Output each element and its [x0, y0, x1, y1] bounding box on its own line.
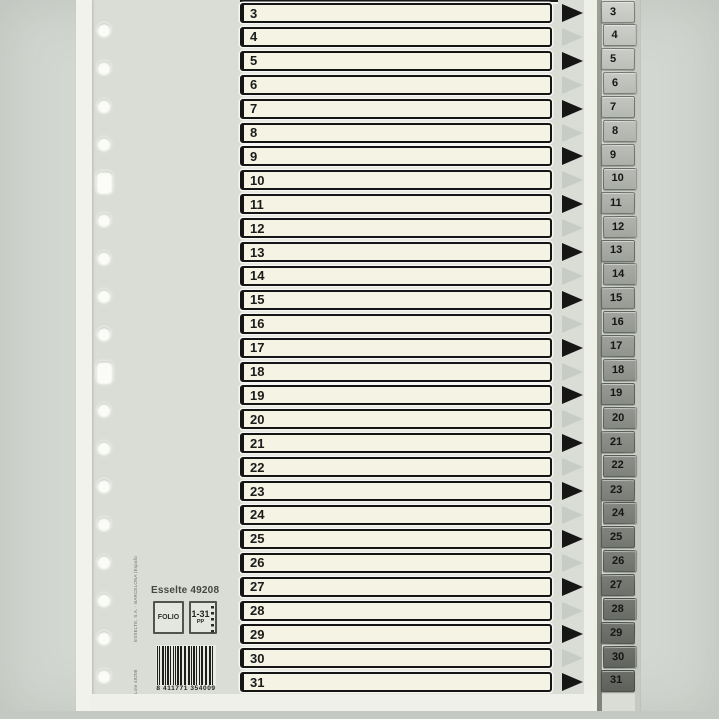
tab-number: 10	[604, 173, 624, 184]
tab-number: 21	[602, 436, 622, 447]
barcode-bar	[165, 646, 166, 685]
partial-row-above	[240, 0, 558, 2]
index-row-box: 31	[240, 672, 552, 692]
arrow-right-icon	[562, 28, 583, 46]
divider-product-photo: 3456789101112131415161718192021222324252…	[0, 0, 719, 719]
arrow-right-icon	[562, 147, 583, 165]
tab-number: 19	[602, 388, 622, 399]
arrow-right-icon	[562, 506, 583, 524]
barcode-bar	[209, 646, 211, 685]
tab-31: 31	[601, 670, 635, 692]
barcode-bar	[175, 646, 176, 685]
barcode-bar	[177, 646, 179, 685]
barcode-bar	[180, 646, 181, 685]
tab-11: 11	[601, 191, 635, 213]
tab-number: 12	[603, 221, 623, 232]
index-row-box: 26	[240, 553, 552, 573]
tab-number: 8	[603, 125, 617, 136]
index-row-box: 22	[240, 457, 552, 477]
index-row-box: 23	[240, 481, 552, 501]
barcode-bar	[188, 646, 189, 685]
tab-23: 23	[601, 478, 635, 500]
index-row-number: 17	[244, 341, 264, 354]
index-row-box: 4	[240, 27, 552, 47]
barcode-bar	[173, 646, 174, 685]
index-row-number: 3	[244, 7, 257, 20]
arrow-right-icon	[562, 578, 583, 596]
tab-24: 24	[602, 502, 636, 524]
micro-print-lot: Lote 49208	[133, 648, 138, 694]
barcode-bar	[185, 646, 186, 685]
tab-8: 8	[602, 120, 636, 142]
index-row-box: 11	[240, 194, 552, 214]
index-row-box: 19	[240, 385, 552, 405]
tab-19: 19	[601, 383, 635, 405]
tab-27: 27	[601, 574, 635, 596]
index-row-number: 20	[244, 413, 264, 426]
tab-15: 15	[601, 287, 635, 309]
tab-number: 16	[604, 317, 624, 328]
index-row-number: 10	[244, 174, 264, 187]
index-row-box: 13	[240, 242, 552, 262]
barcode	[156, 645, 216, 686]
index-row-number: 16	[244, 317, 264, 330]
index-row-number: 30	[244, 652, 264, 665]
barcode-bar	[193, 646, 195, 685]
index-row-box: 14	[240, 266, 552, 286]
tab-number: 27	[602, 580, 622, 591]
barcode-bar	[191, 646, 192, 685]
tab-29: 29	[601, 622, 635, 644]
tab-6: 6	[602, 72, 636, 94]
tab-number: 14	[603, 269, 623, 280]
tab-17: 17	[601, 335, 635, 357]
tab-number: 28	[604, 604, 624, 615]
tab-3: 3	[601, 0, 635, 22]
index-row-box: 6	[240, 75, 552, 95]
arrow-right-icon	[562, 625, 583, 643]
arrow-right-icon	[562, 458, 583, 476]
tab-number: 22	[604, 460, 624, 471]
arrow-right-icon	[562, 434, 583, 452]
tab-number: 20	[603, 412, 623, 423]
index-row-box: 15	[240, 290, 552, 310]
index-row-box: 7	[240, 99, 552, 119]
index-row-number: 8	[244, 126, 257, 139]
tab-7: 7	[601, 96, 635, 118]
barcode-bar	[212, 646, 213, 685]
index-row-number: 6	[244, 78, 257, 91]
index-row-box: 20	[240, 409, 552, 429]
barcode-bar	[170, 646, 171, 685]
index-row-box: 9	[240, 146, 552, 166]
index-row-box: 29	[240, 624, 552, 644]
index-row-number: 28	[244, 604, 264, 617]
index-row-box: 12	[240, 218, 552, 238]
tab-number: 18	[603, 364, 623, 375]
index-row-number: 31	[244, 676, 264, 689]
range-box: 1-31 PP	[189, 601, 217, 634]
index-row-box: 17	[240, 338, 552, 358]
tab-21: 21	[601, 430, 635, 452]
arrow-right-icon	[562, 267, 583, 285]
tab-number: 15	[602, 293, 622, 304]
range-label: 1-31	[191, 610, 209, 619]
arrow-right-icon	[562, 291, 583, 309]
barcode-bar	[205, 646, 206, 685]
arrow-right-icon	[562, 76, 583, 94]
index-row-box: 3	[240, 3, 552, 23]
barcode-digits: 8 411771 354009	[152, 685, 220, 692]
index-row-number: 23	[244, 485, 264, 498]
index-row-number: 13	[244, 246, 264, 259]
tab-9: 9	[601, 144, 635, 166]
index-row-box: 25	[240, 529, 552, 549]
tab-number: 29	[602, 627, 622, 638]
tab-number: 30	[603, 651, 623, 662]
index-row-number: 18	[244, 365, 264, 378]
tab-number: 11	[602, 197, 622, 208]
arrow-right-icon	[562, 4, 583, 22]
barcode-bar	[199, 646, 200, 685]
tab-number: 6	[603, 78, 617, 89]
arrow-right-icon	[562, 243, 583, 261]
index-row-box: 10	[240, 170, 552, 190]
index-row-number: 5	[244, 54, 257, 67]
index-row-box: 27	[240, 577, 552, 597]
tab-5: 5	[601, 48, 635, 70]
tab-number: 25	[602, 532, 622, 543]
arrow-right-icon	[562, 195, 583, 213]
index-row-number: 4	[244, 30, 257, 43]
tab-number: 4	[604, 30, 618, 41]
brand-article-text: Esselte 49208	[151, 585, 246, 596]
index-row-number: 25	[244, 532, 264, 545]
arrow-right-icon	[562, 219, 583, 237]
arrow-right-icon	[562, 649, 583, 667]
tab-number: 23	[602, 484, 622, 495]
tab-number: 9	[602, 149, 616, 160]
micro-print-address: ESSELTE, S.A. · BARCELONA (España)	[133, 556, 138, 642]
barcode-bar	[162, 646, 164, 685]
index-row-number: 19	[244, 389, 264, 402]
arrow-right-icon	[562, 673, 583, 691]
index-row-number: 9	[244, 150, 257, 163]
tab-10: 10	[603, 168, 637, 190]
format-box: FOLIO	[153, 601, 184, 634]
arrow-right-icon	[562, 100, 583, 118]
index-row-box: 16	[240, 314, 552, 334]
arrow-right-icon	[562, 386, 583, 404]
arrow-right-icon	[562, 339, 583, 357]
index-row-box: 30	[240, 648, 552, 668]
index-row-number: 24	[244, 508, 264, 521]
index-row-number: 26	[244, 556, 264, 569]
tab-30: 30	[602, 646, 636, 668]
range-material-label: PP	[197, 619, 204, 625]
tab-number: 13	[602, 245, 622, 256]
tab-number: 3	[602, 6, 616, 17]
index-row-box: 8	[240, 123, 552, 143]
tab-22: 22	[603, 455, 637, 477]
tab-25: 25	[601, 526, 635, 548]
index-row-box: 28	[240, 601, 552, 621]
tab-16: 16	[603, 311, 637, 333]
tab-number: 5	[602, 54, 616, 65]
tab-12: 12	[602, 215, 636, 237]
index-row-box: 24	[240, 505, 552, 525]
background-bottom-band	[0, 711, 719, 719]
index-row-box: 18	[240, 362, 552, 382]
format-label: FOLIO	[158, 614, 179, 621]
perforation-dots-icon	[211, 606, 214, 633]
tab-number: 7	[602, 102, 616, 113]
arrow-right-icon	[562, 171, 583, 189]
barcode-bar	[196, 646, 197, 685]
tab-column-shadow	[635, 0, 641, 712]
arrow-right-icon	[562, 554, 583, 572]
tab-number: 17	[602, 340, 622, 351]
arrow-right-icon	[562, 124, 583, 142]
stack-edge-highlight	[584, 0, 597, 712]
arrow-right-icon	[562, 602, 583, 620]
tab-28: 28	[603, 598, 637, 620]
barcode-bar	[201, 646, 202, 685]
barcode-bar	[157, 646, 158, 685]
tab-26: 26	[602, 550, 636, 572]
barcode-bar	[206, 646, 207, 685]
sheet-bottom-margin	[90, 694, 596, 711]
index-row-number: 12	[244, 222, 264, 235]
tab-number: 31	[602, 675, 622, 686]
tab-13: 13	[601, 240, 635, 262]
tab-number: 24	[603, 508, 623, 519]
tab-4: 4	[603, 24, 637, 46]
arrow-right-icon	[562, 530, 583, 548]
index-row-box: 5	[240, 51, 552, 71]
index-row-number: 22	[244, 461, 264, 474]
index-row-number: 27	[244, 580, 264, 593]
barcode-bar	[167, 646, 168, 685]
index-row-number: 29	[244, 628, 264, 641]
tab-20: 20	[602, 407, 636, 429]
index-row-number: 7	[244, 102, 257, 115]
tab-18: 18	[602, 359, 636, 381]
index-row-number: 11	[244, 198, 264, 211]
index-row-box: 21	[240, 433, 552, 453]
arrow-right-icon	[562, 410, 583, 428]
index-row-number: 15	[244, 293, 264, 306]
arrow-right-icon	[562, 363, 583, 381]
barcode-bar	[184, 646, 185, 685]
tab-14: 14	[602, 263, 636, 285]
tab-number: 26	[603, 555, 623, 566]
barcode-bar	[159, 646, 160, 685]
index-row-number: 14	[244, 269, 264, 282]
arrow-right-icon	[562, 482, 583, 500]
index-row-number: 21	[244, 437, 264, 450]
arrow-right-icon	[562, 52, 583, 70]
arrow-right-icon	[562, 315, 583, 333]
